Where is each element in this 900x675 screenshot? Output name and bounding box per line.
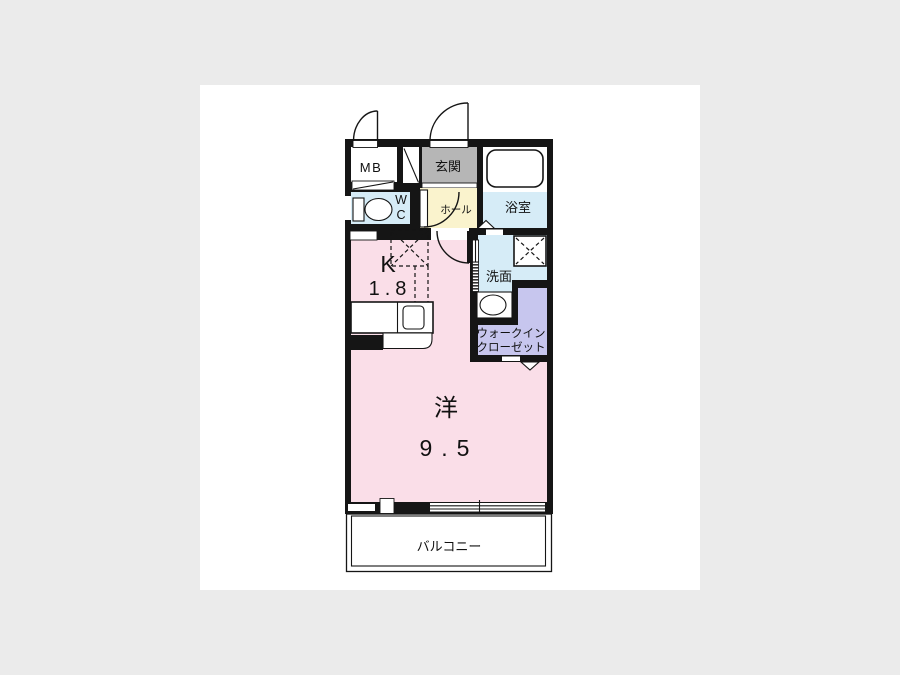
label-bathroom: 浴室 [505,200,531,215]
screenshot-canvas: MB 玄関 浴室 W C ホール 洗面 ウォークイン クローゼット K 1.8 … [0,0,900,675]
sliding-door-panel [473,262,479,292]
label-western-room-size: 9.5 [420,435,479,461]
room-door-leaf [467,231,471,263]
label-washroom: 洗面 [486,269,512,284]
label-toilet-w: W [395,193,407,207]
wall-vanity-closet [512,288,518,318]
toilet-window [345,196,351,220]
bottom-wall-notch [380,499,394,514]
entrance-door-threshold [430,141,468,148]
label-mb: MB [360,160,383,175]
label-kitchen-size: 1.8 [369,278,412,300]
balcony-window [430,503,545,512]
wall-washroom-closet [512,280,547,288]
label-balcony: バルコニー [417,539,482,554]
kitchen-counter-lip [383,333,432,349]
label-western-room: 洋 [434,395,458,422]
toilet-tank [353,198,364,221]
label-entrance: 玄関 [435,159,461,174]
counter-in-wall [350,231,377,240]
floorplan-svg: MB 玄関 浴室 W C ホール 洗面 ウォークイン クローゼット K 1.8 … [0,0,900,675]
label-hall: ホール [440,204,472,216]
label-toilet-c: C [396,208,405,222]
toilet-door-leaf [420,190,428,227]
bottom-left-window [348,504,375,511]
wall-below-vanity [470,318,518,325]
label-closet-line1: ウォークイン [477,327,546,340]
label-closet-line2: クローゼット [477,341,546,354]
wall-kitchen-stub [345,335,383,350]
toilet-bowl [365,199,392,221]
washbasin [480,295,506,315]
closet-wall-slot [502,357,520,362]
mb-door-threshold [353,141,378,148]
kitchen-sink [403,306,424,329]
label-kitchen: K [380,251,396,277]
bathtub [487,150,543,187]
entrance-step [422,183,477,188]
room-western-right [470,362,547,502]
bathroom-wall-slot [486,230,503,236]
